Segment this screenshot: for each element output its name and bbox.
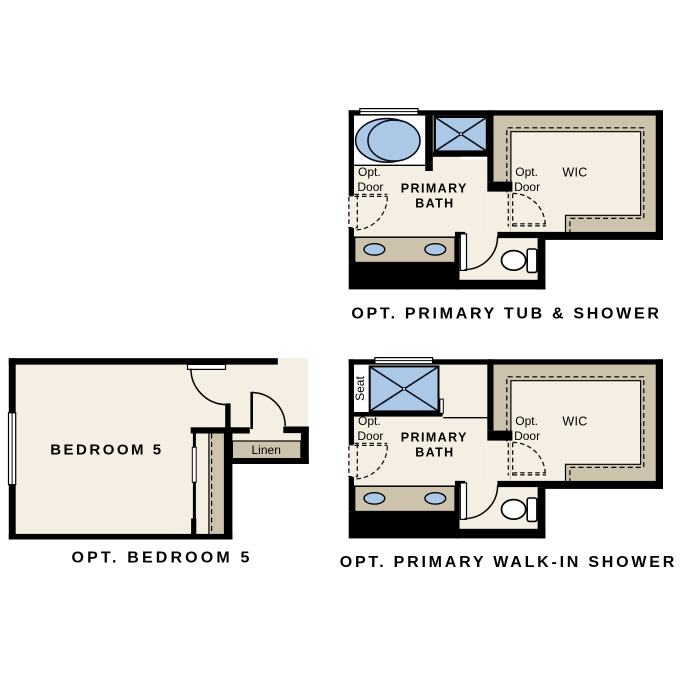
svg-text:WIC: WIC bbox=[562, 415, 587, 429]
svg-text:Opt.: Opt. bbox=[358, 165, 381, 179]
svg-text:OPT. BEDROOM 5: OPT. BEDROOM 5 bbox=[71, 550, 252, 567]
svg-text:OPT. PRIMARY TUB & SHOWER: OPT. PRIMARY TUB & SHOWER bbox=[351, 306, 661, 323]
svg-text:WIC: WIC bbox=[562, 166, 587, 180]
svg-text:Door: Door bbox=[514, 429, 540, 443]
svg-text:Linen: Linen bbox=[252, 443, 281, 457]
svg-text:BEDROOM 5: BEDROOM 5 bbox=[50, 441, 163, 458]
svg-text:OPT. PRIMARY WALK-IN SHOWER: OPT. PRIMARY WALK-IN SHOWER bbox=[340, 554, 677, 571]
svg-text:PRIMARY: PRIMARY bbox=[401, 431, 468, 445]
svg-text:Opt.: Opt. bbox=[515, 414, 538, 428]
svg-text:PRIMARY: PRIMARY bbox=[401, 182, 468, 196]
svg-text:BATH: BATH bbox=[415, 197, 454, 211]
svg-text:Opt.: Opt. bbox=[358, 414, 381, 428]
svg-text:Door: Door bbox=[357, 429, 383, 443]
svg-text:BATH: BATH bbox=[415, 446, 454, 460]
svg-text:Door: Door bbox=[514, 180, 540, 194]
svg-text:Opt.: Opt. bbox=[515, 165, 538, 179]
svg-text:Seat: Seat bbox=[353, 376, 367, 401]
svg-text:Door: Door bbox=[357, 180, 383, 194]
